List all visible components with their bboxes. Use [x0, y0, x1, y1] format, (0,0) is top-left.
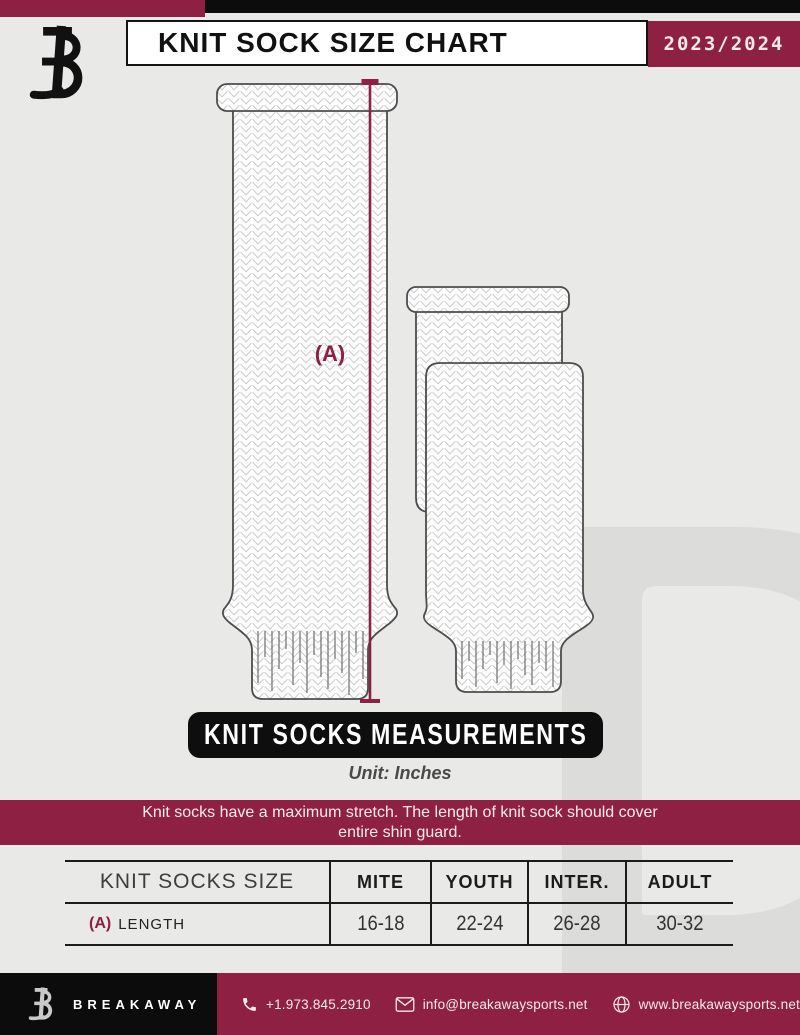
size-chart-page: KNIT SOCK SIZE CHART 2023/2024: [0, 0, 800, 1035]
footer-website: www.breakawaysports.net: [612, 995, 800, 1014]
footer-website-url: www.breakawaysports.net: [639, 997, 800, 1012]
footer-brand-block: BREAKAWAY: [0, 973, 217, 1035]
footer-phone: +1.973.845.2910: [241, 996, 371, 1013]
phone-icon: [241, 996, 258, 1013]
value-mite: 16-18: [329, 904, 430, 944]
value-inter: 26-28: [527, 904, 625, 944]
row-label-prefix: (A): [89, 915, 111, 933]
stretch-note-banner: Knit socks have a maximum stretch. The l…: [0, 800, 800, 845]
measurement-label-a: (A): [315, 341, 346, 366]
column-header-youth: YOUTH: [430, 862, 527, 904]
footer: BREAKAWAY +1.973.845.2910 info@breakaway…: [0, 973, 800, 1035]
column-header-adult: ADULT: [625, 862, 733, 904]
column-header-inter: INTER.: [527, 862, 625, 904]
measurements-banner: KNIT SOCKS MEASUREMENTS: [188, 712, 603, 758]
size-header-label: KNIT SOCKS SIZE: [100, 870, 294, 894]
note-line-1: Knit socks have a maximum stretch. The l…: [142, 803, 658, 823]
column-header-mite: MITE: [329, 862, 430, 904]
footer-contact-block: +1.973.845.2910 info@breakawaysports.net…: [217, 973, 800, 1035]
size-table-header: KNIT SOCKS SIZE: [65, 862, 329, 904]
globe-icon: [612, 995, 631, 1014]
value-adult: 30-32: [625, 904, 733, 944]
unit-label: Unit: Inches: [0, 763, 800, 784]
row-label-length: (A) LENGTH: [65, 904, 329, 944]
row-label: LENGTH: [118, 916, 185, 933]
measurements-banner-label: KNIT SOCKS MEASUREMENTS: [204, 719, 588, 752]
breakaway-footer-logo: [28, 986, 60, 1022]
value-youth: 22-24: [430, 904, 527, 944]
email-icon: [395, 996, 415, 1013]
footer-brand-name: BREAKAWAY: [73, 997, 201, 1012]
footer-phone-number: +1.973.845.2910: [266, 997, 371, 1012]
footer-email-address: info@breakawaysports.net: [423, 997, 588, 1012]
footer-email: info@breakawaysports.net: [395, 996, 588, 1013]
note-line-2: entire shin guard.: [338, 823, 462, 843]
size-table: KNIT SOCKS SIZE MITE YOUTH INTER. ADULT …: [65, 860, 733, 946]
